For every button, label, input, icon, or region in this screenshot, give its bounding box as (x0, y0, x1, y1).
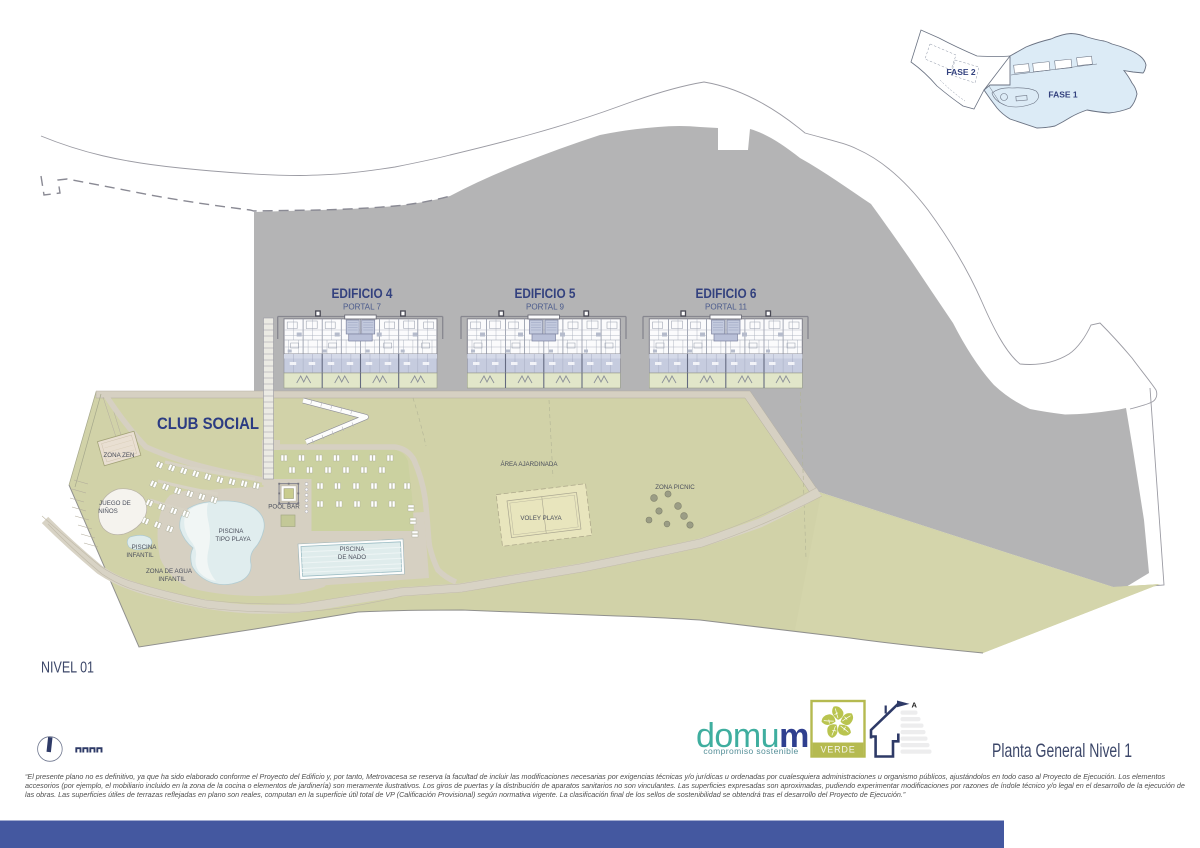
svg-text:ZONA ZEN: ZONA ZEN (104, 452, 135, 459)
svg-text:INFANTIL: INFANTIL (158, 576, 186, 583)
svg-text:EDIFICIO 6: EDIFICIO 6 (696, 285, 757, 301)
svg-text:A: A (912, 701, 918, 710)
svg-text:DE NADO: DE NADO (338, 554, 366, 561)
svg-text:TIPO PLAYA: TIPO PLAYA (215, 536, 251, 543)
svg-text:ZONA PICNIC: ZONA PICNIC (655, 484, 695, 491)
svg-text:PISCINA: PISCINA (219, 528, 245, 535)
svg-text:PORTAL 9: PORTAL 9 (526, 303, 565, 312)
svg-text:NIVEL 01: NIVEL 01 (41, 660, 94, 677)
svg-text:compromiso sostenible: compromiso sostenible (703, 746, 798, 756)
svg-text:PORTAL 11: PORTAL 11 (705, 303, 748, 312)
svg-text:“El presente plano no es defin: “El presente plano no es definitivo, ya … (25, 772, 1166, 781)
svg-text:POOL BAR: POOL BAR (268, 504, 300, 511)
svg-text:FASE 2: FASE 2 (946, 67, 976, 77)
svg-text:PISCINA: PISCINA (340, 546, 366, 553)
svg-text:ZONA DE AGUA: ZONA DE AGUA (146, 568, 193, 575)
svg-text:PORTAL 7: PORTAL 7 (343, 303, 382, 312)
svg-text:VOLEY PLAYA: VOLEY PLAYA (520, 515, 562, 522)
svg-text:JUEGO DE: JUEGO DE (99, 500, 131, 507)
svg-text:accesorios (por ejemplo, el mo: accesorios (por ejemplo, el mobiliario i… (25, 781, 1185, 790)
svg-text:CLUB SOCIAL: CLUB SOCIAL (157, 415, 259, 433)
svg-text:INFANTIL: INFANTIL (126, 552, 154, 559)
svg-text:Planta General Nivel 1: Planta General Nivel 1 (992, 740, 1132, 762)
svg-text:EDIFICIO 5: EDIFICIO 5 (515, 285, 576, 301)
svg-text:NIÑOS: NIÑOS (98, 508, 118, 515)
svg-text:las obras. Las superficies úti: las obras. Las superficies útiles de ter… (25, 790, 906, 799)
svg-text:PISCINA: PISCINA (132, 544, 158, 551)
svg-text:VERDE: VERDE (820, 745, 855, 755)
svg-text:EDIFICIO 4: EDIFICIO 4 (332, 285, 393, 301)
svg-text:ÁREA AJARDINADA: ÁREA AJARDINADA (500, 461, 558, 468)
svg-text:FASE 1: FASE 1 (1048, 90, 1078, 100)
